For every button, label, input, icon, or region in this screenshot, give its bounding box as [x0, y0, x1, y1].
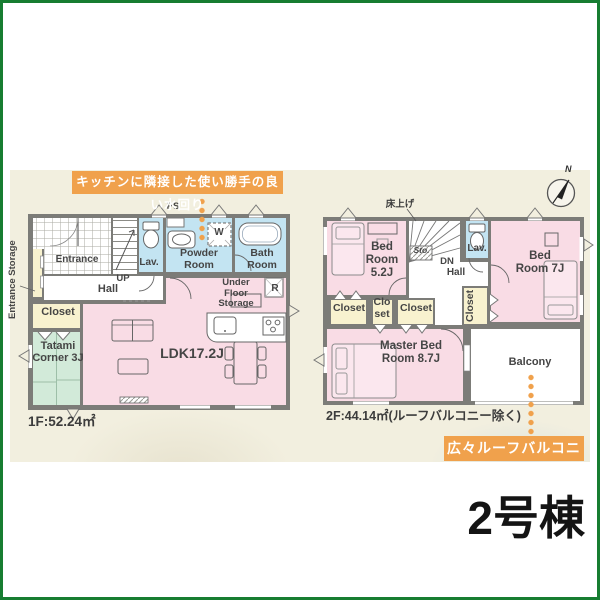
closet3-label: Closet	[396, 303, 436, 315]
bathtub-icon	[239, 223, 281, 245]
tv-board	[120, 397, 148, 403]
floor1-area-label: 1F:52.24㎡	[28, 414, 138, 429]
balcony-annotation-dots	[528, 373, 534, 435]
master-bedroom-label: Master Bed Room 8.7J	[376, 340, 446, 366]
pipe-space	[167, 218, 184, 227]
floor2-area-label: 2F:44.14㎡(ルーフバルコニー除く)	[326, 409, 556, 423]
refrigerator-label: R	[266, 283, 284, 294]
tatami-corner-label: Tatami Corner 3J	[32, 340, 84, 365]
entrance-storage-label: Entrance Storage	[8, 238, 19, 322]
roof-balcony-annotation: 広々ルーフバルコニー	[444, 436, 584, 461]
raised-floor-label: 床上げ	[383, 200, 417, 211]
hall-2f-label: Hall	[440, 267, 472, 278]
hall-1f-label: Hall	[88, 283, 128, 295]
kitchen-annotation: キッチンに隣接した使い勝手の良い水回り	[72, 171, 283, 194]
sink-icon	[168, 231, 195, 248]
under-floor-storage-label: Under Floor Storage	[212, 278, 260, 310]
balcony-window	[464, 345, 470, 371]
closet-1f-label: Closet	[35, 306, 81, 318]
bedroom1-label: Bed Room 5.2J	[355, 241, 409, 280]
storage-2f-label: Sto.	[409, 246, 434, 256]
lav-1f-label: Lav.	[131, 257, 167, 268]
powder-room-label: Powder Room	[173, 248, 225, 272]
entrance-label: Entrance	[46, 254, 108, 265]
closet2-label: Clo set	[370, 297, 394, 321]
ldk-label: LDK17.2J	[150, 346, 234, 362]
compass-north-label: N	[565, 164, 572, 174]
kitchen-counter	[207, 313, 286, 342]
building-number-label: 2号棟	[435, 482, 585, 548]
toilet-icon-1f	[143, 222, 159, 248]
washer-label: W	[206, 227, 232, 238]
bedroom2-label: Bed Room 7J	[513, 250, 567, 276]
closet4-label: Closet	[465, 287, 477, 325]
compass-icon	[542, 170, 582, 212]
closet1-label: Closet	[330, 303, 368, 315]
lav-2f-label: Lav.	[459, 243, 495, 254]
bath-room-label: Bath Room	[239, 248, 285, 272]
balcony-label: Balcony	[505, 356, 555, 368]
